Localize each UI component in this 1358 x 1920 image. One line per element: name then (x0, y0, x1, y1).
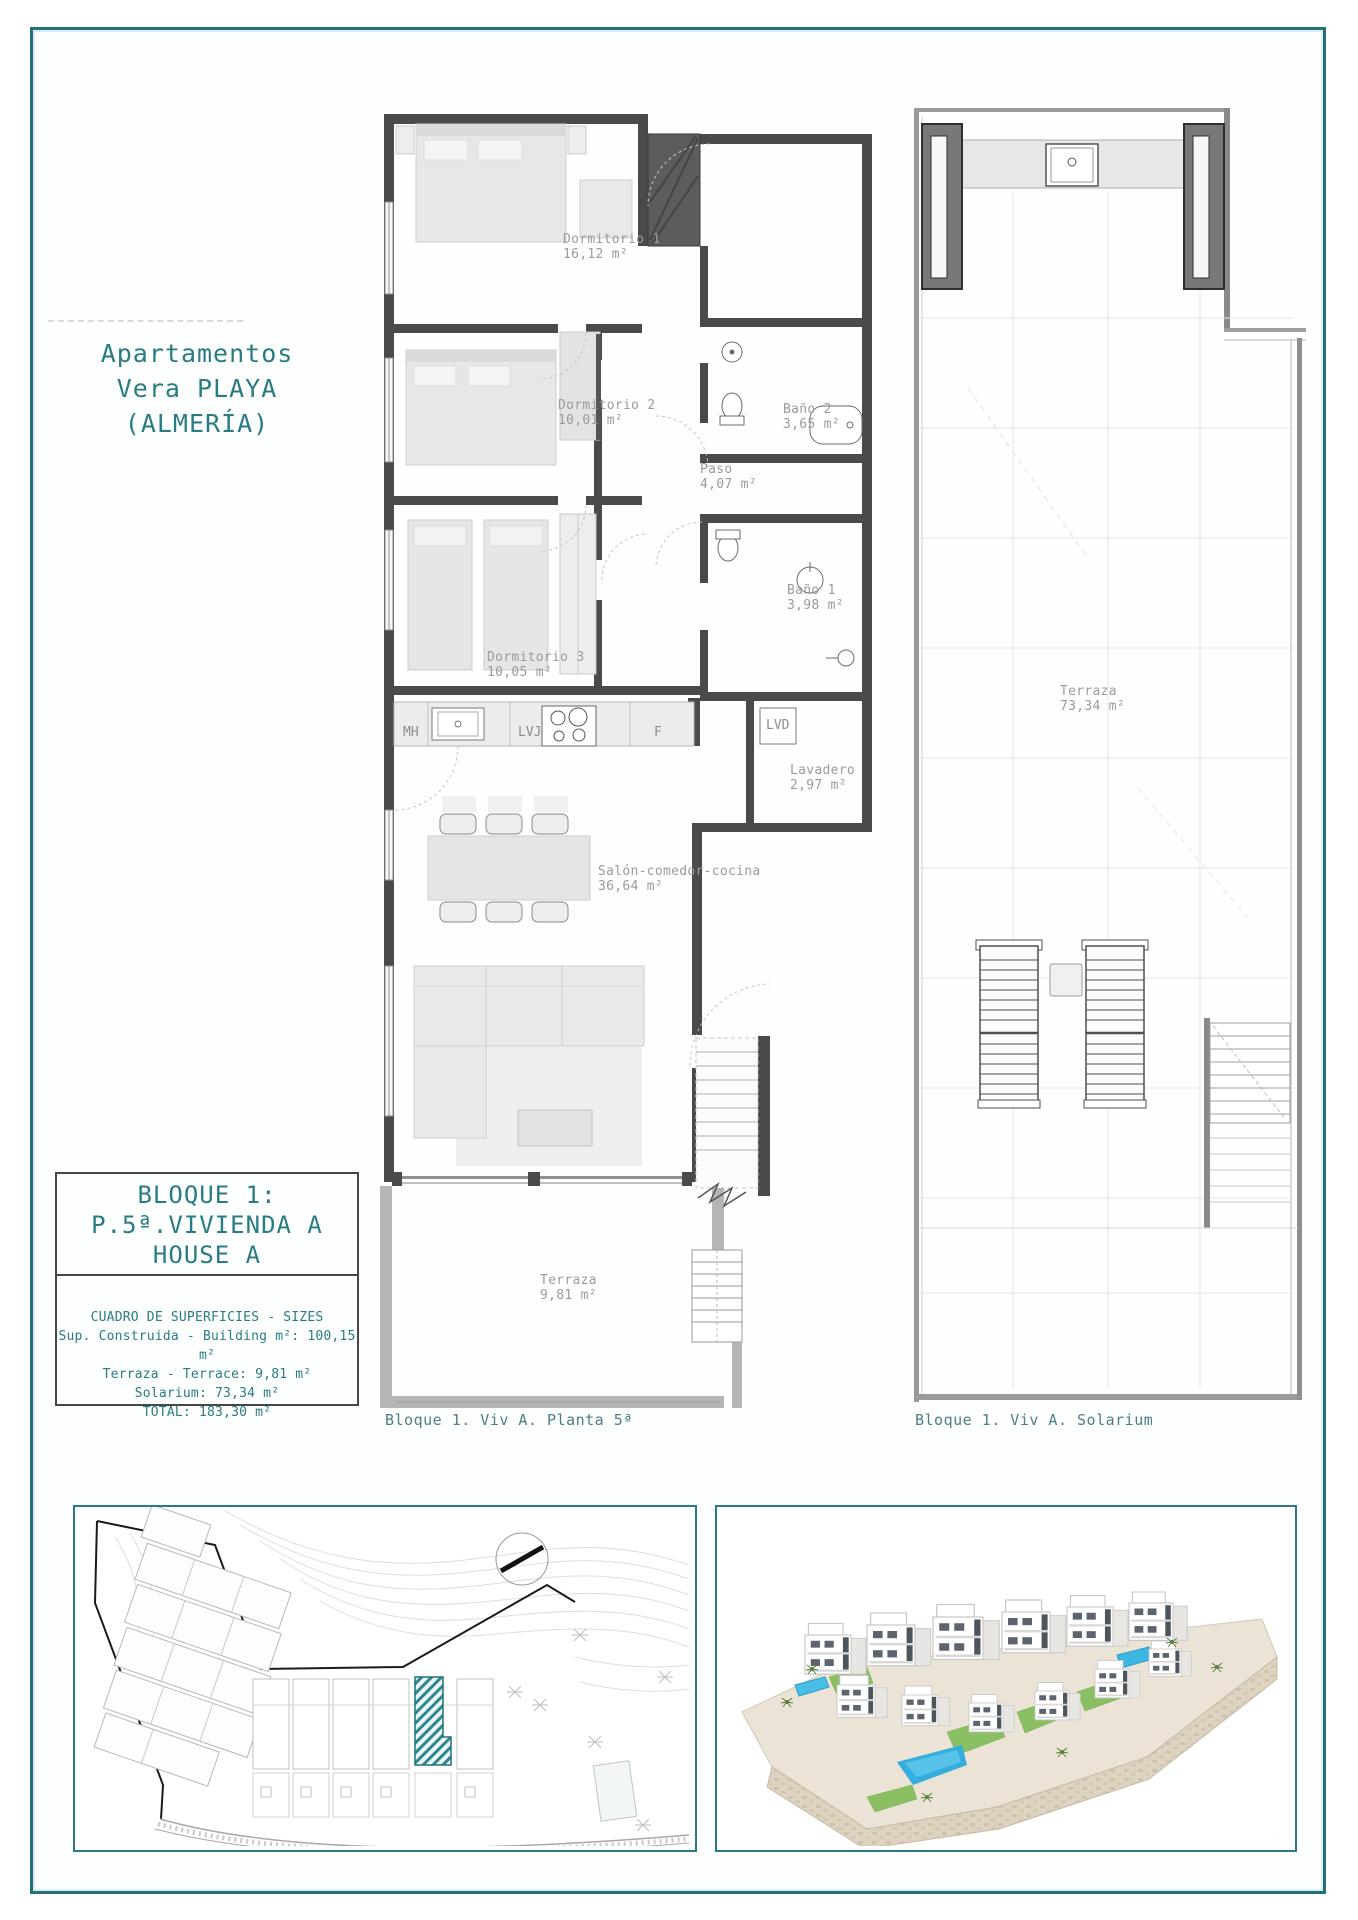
kitchen-counter (394, 702, 694, 746)
kitchen-hob (542, 706, 596, 746)
dining-set (428, 796, 590, 922)
floor-plan-planta5-drawing (380, 110, 880, 1410)
room-label-dormitorio2: Dormitorio 210,01 m² (558, 398, 656, 428)
room-label-solarium-terraza: Terraza73,34 m² (1060, 684, 1125, 714)
sizes-row: Sup. Construida - Building m²: 100,15 m² (57, 1327, 357, 1365)
room-label-bano2: Baño 23,65 m² (783, 402, 840, 432)
lounger (1082, 940, 1148, 1108)
site-plan-drawing (75, 1507, 691, 1846)
north-compass (496, 1533, 548, 1585)
title-line-3: (ALMERÍA) (52, 406, 342, 441)
room-label-bano1: Baño 13,98 m² (787, 583, 844, 613)
stairs-lower (692, 1250, 742, 1342)
room-label-terraza: Terraza9,81 m² (540, 1273, 597, 1303)
brochure-page: { "header": { "title_lines": ["Apartamen… (0, 0, 1358, 1920)
living-room-furniture (414, 966, 644, 1166)
caption-solarium: Bloque 1. Viv A. Solarium (915, 1411, 1153, 1429)
solarium-counter (936, 140, 1198, 188)
sun-loungers (976, 940, 1148, 1108)
solarium-boundary (914, 108, 1306, 1402)
surfaces-info-box: BLOQUE 1: P.5ª.VIVIENDA A HOUSE A CUADRO… (55, 1172, 359, 1406)
caption-planta5: Bloque 1. Viv A. Planta 5ª (385, 1411, 633, 1429)
road (155, 1819, 689, 1846)
label-dishwasher: LVJ (518, 726, 541, 740)
site-plan-box (73, 1505, 697, 1852)
highlighted-unit (415, 1677, 451, 1765)
title-line-1: Apartamentos (52, 336, 342, 371)
faint-watermark-line (48, 320, 243, 322)
sizes-row: TOTAL: 183,30 m² (57, 1403, 357, 1422)
room-label-dormitorio1: Dormitorio 116,12 m² (563, 232, 661, 262)
label-microwave: MH (403, 726, 419, 740)
solarium-sink (1046, 144, 1098, 186)
room-label-lavadero: Lavadero2,97 m² (790, 763, 855, 793)
stairs-upper (696, 1038, 758, 1206)
building-render-illustration (717, 1507, 1291, 1846)
unit-row (253, 1679, 493, 1817)
service-shaft (648, 134, 700, 246)
project-title: Apartamentos Vera PLAYA (ALMERÍA) (52, 336, 342, 441)
title-line-2: Vera PLAYA (52, 371, 342, 406)
label-fridge: F (654, 726, 662, 740)
label-washer: LVD (766, 719, 789, 733)
render-image-box (715, 1505, 1297, 1852)
sizes-row: Solarium: 73,34 m² (57, 1384, 357, 1403)
room-label-dormitorio3: Dormitorio 310,05 m² (487, 650, 585, 680)
floor-grid (920, 193, 1294, 1388)
site-pool (593, 1761, 636, 1821)
bedroom1-furniture (396, 124, 632, 242)
side-table (1050, 964, 1082, 996)
sizes-title: CUADRO DE SUPERFICIES - SIZES (57, 1308, 357, 1327)
terrace-glass-wall (392, 1172, 692, 1186)
room-label-paso: Paso4,07 m² (700, 462, 757, 492)
sizes-row: Terraza - Terrace: 9,81 m² (57, 1365, 357, 1384)
sizes-table: CUADRO DE SUPERFICIES - SIZES Sup. Const… (57, 1276, 357, 1422)
block-identifier: BLOQUE 1: P.5ª.VIVIENDA A HOUSE A (57, 1174, 357, 1276)
kitchen-sink (432, 708, 484, 740)
solarium-plan-drawing (908, 88, 1308, 1410)
lounger (976, 940, 1042, 1108)
room-label-salon: Salón-comedor-cocina36,64 m² (598, 864, 761, 894)
